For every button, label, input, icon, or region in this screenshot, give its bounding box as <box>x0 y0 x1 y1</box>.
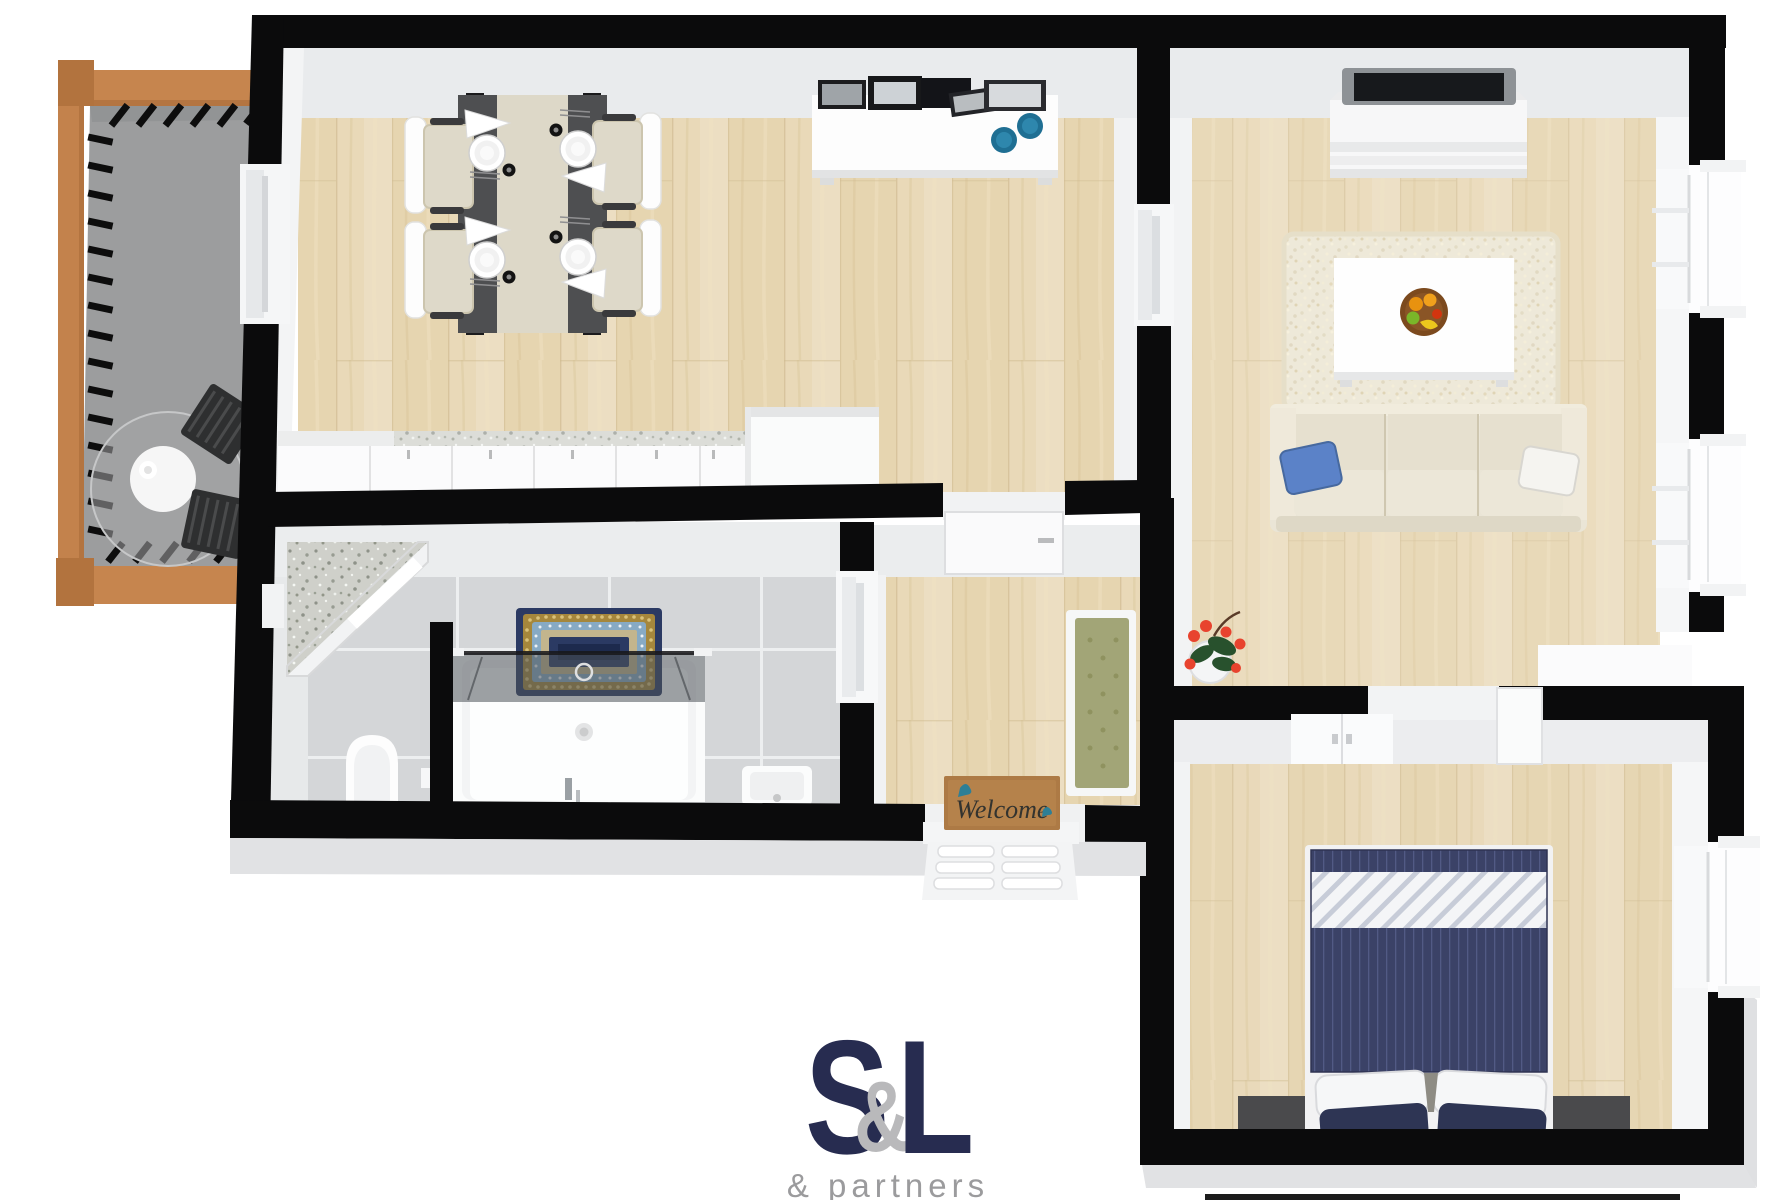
svg-text:Welcome: Welcome <box>956 795 1049 824</box>
svg-text:L: L <box>897 1006 974 1188</box>
svg-text:& partners: & partners <box>787 1167 989 1200</box>
